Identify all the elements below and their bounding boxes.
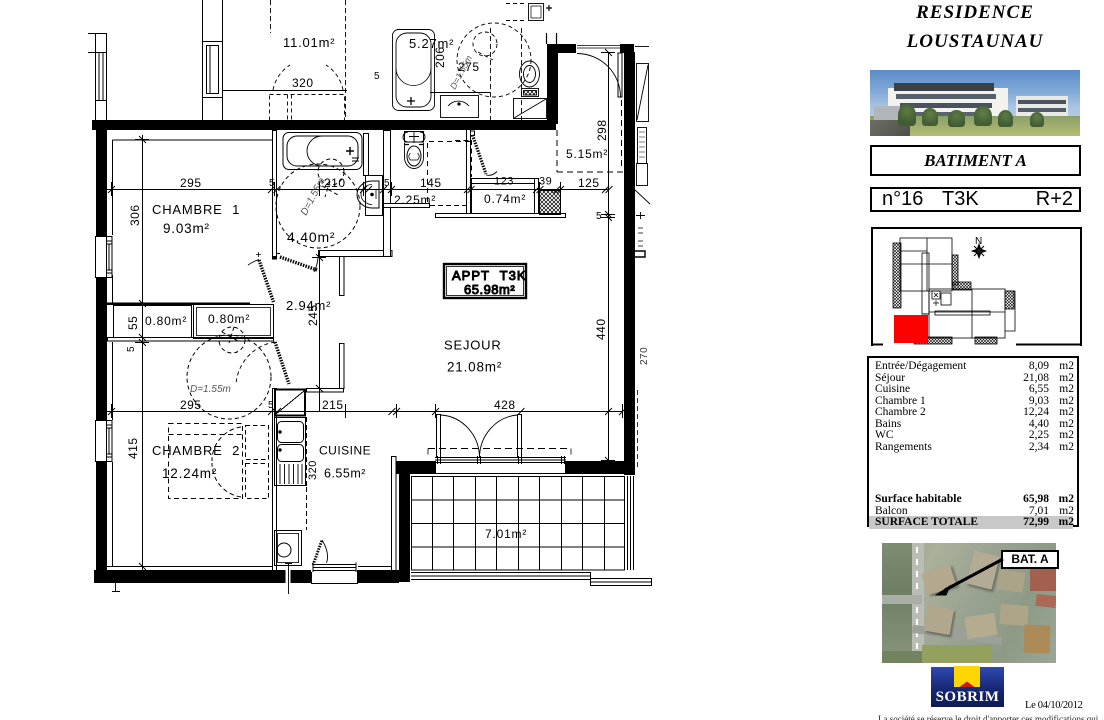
svg-text:CHAMBRE 1: CHAMBRE 1: [152, 202, 240, 217]
svg-text:7.01m²: 7.01m²: [485, 527, 527, 541]
svg-text:5: 5: [269, 178, 275, 189]
svg-text:2.25m²: 2.25m²: [394, 193, 436, 207]
svg-text:5: 5: [268, 400, 274, 411]
svg-text:440: 440: [594, 318, 608, 340]
svg-text:320: 320: [292, 76, 314, 90]
svg-text:4.40m²: 4.40m²: [287, 229, 335, 245]
svg-text:415: 415: [126, 437, 140, 459]
svg-text:295: 295: [180, 176, 202, 190]
svg-text:0.74m²: 0.74m²: [484, 192, 526, 206]
svg-text:145: 145: [420, 176, 442, 190]
svg-text:SEJOUR: SEJOUR: [444, 338, 502, 353]
svg-text:210: 210: [324, 176, 346, 190]
svg-text:6.55m²: 6.55m²: [324, 467, 366, 481]
svg-text:5: 5: [374, 71, 380, 82]
svg-text:125: 125: [578, 176, 600, 190]
svg-text:5.15m²: 5.15m²: [566, 147, 608, 161]
svg-text:65.98m²: 65.98m²: [464, 282, 515, 297]
svg-text:D=1.55m: D=1.55m: [190, 384, 231, 395]
svg-text:5: 5: [596, 211, 602, 222]
svg-text:306: 306: [128, 204, 142, 226]
svg-text:9.03m²: 9.03m²: [163, 221, 210, 236]
svg-text:CHAMBRE 2: CHAMBRE 2: [152, 443, 240, 458]
svg-text:55: 55: [126, 316, 140, 330]
svg-text:11.01m²: 11.01m²: [283, 35, 335, 50]
svg-text:0.80m²: 0.80m²: [208, 312, 250, 326]
svg-text:123: 123: [494, 176, 514, 188]
svg-text:12.24m²: 12.24m²: [162, 466, 217, 481]
svg-text:39: 39: [539, 176, 552, 188]
svg-text:215: 215: [322, 398, 344, 412]
svg-text:APPT T3K: APPT T3K: [452, 268, 527, 283]
svg-text:5: 5: [126, 346, 137, 352]
svg-text:295: 295: [180, 398, 202, 412]
svg-text:5: 5: [384, 178, 390, 189]
svg-text:320: 320: [307, 460, 319, 480]
svg-text:428: 428: [494, 398, 516, 412]
svg-text:0.80m²: 0.80m²: [145, 314, 187, 328]
svg-text:298: 298: [595, 119, 609, 141]
svg-text:270: 270: [639, 347, 650, 365]
svg-text:5.27m²: 5.27m²: [409, 36, 454, 51]
svg-text:2.94m²: 2.94m²: [286, 298, 331, 313]
svg-text:CUΙSΙNE: CUΙSΙNE: [319, 444, 371, 458]
svg-text:21.08m²: 21.08m²: [447, 360, 502, 375]
